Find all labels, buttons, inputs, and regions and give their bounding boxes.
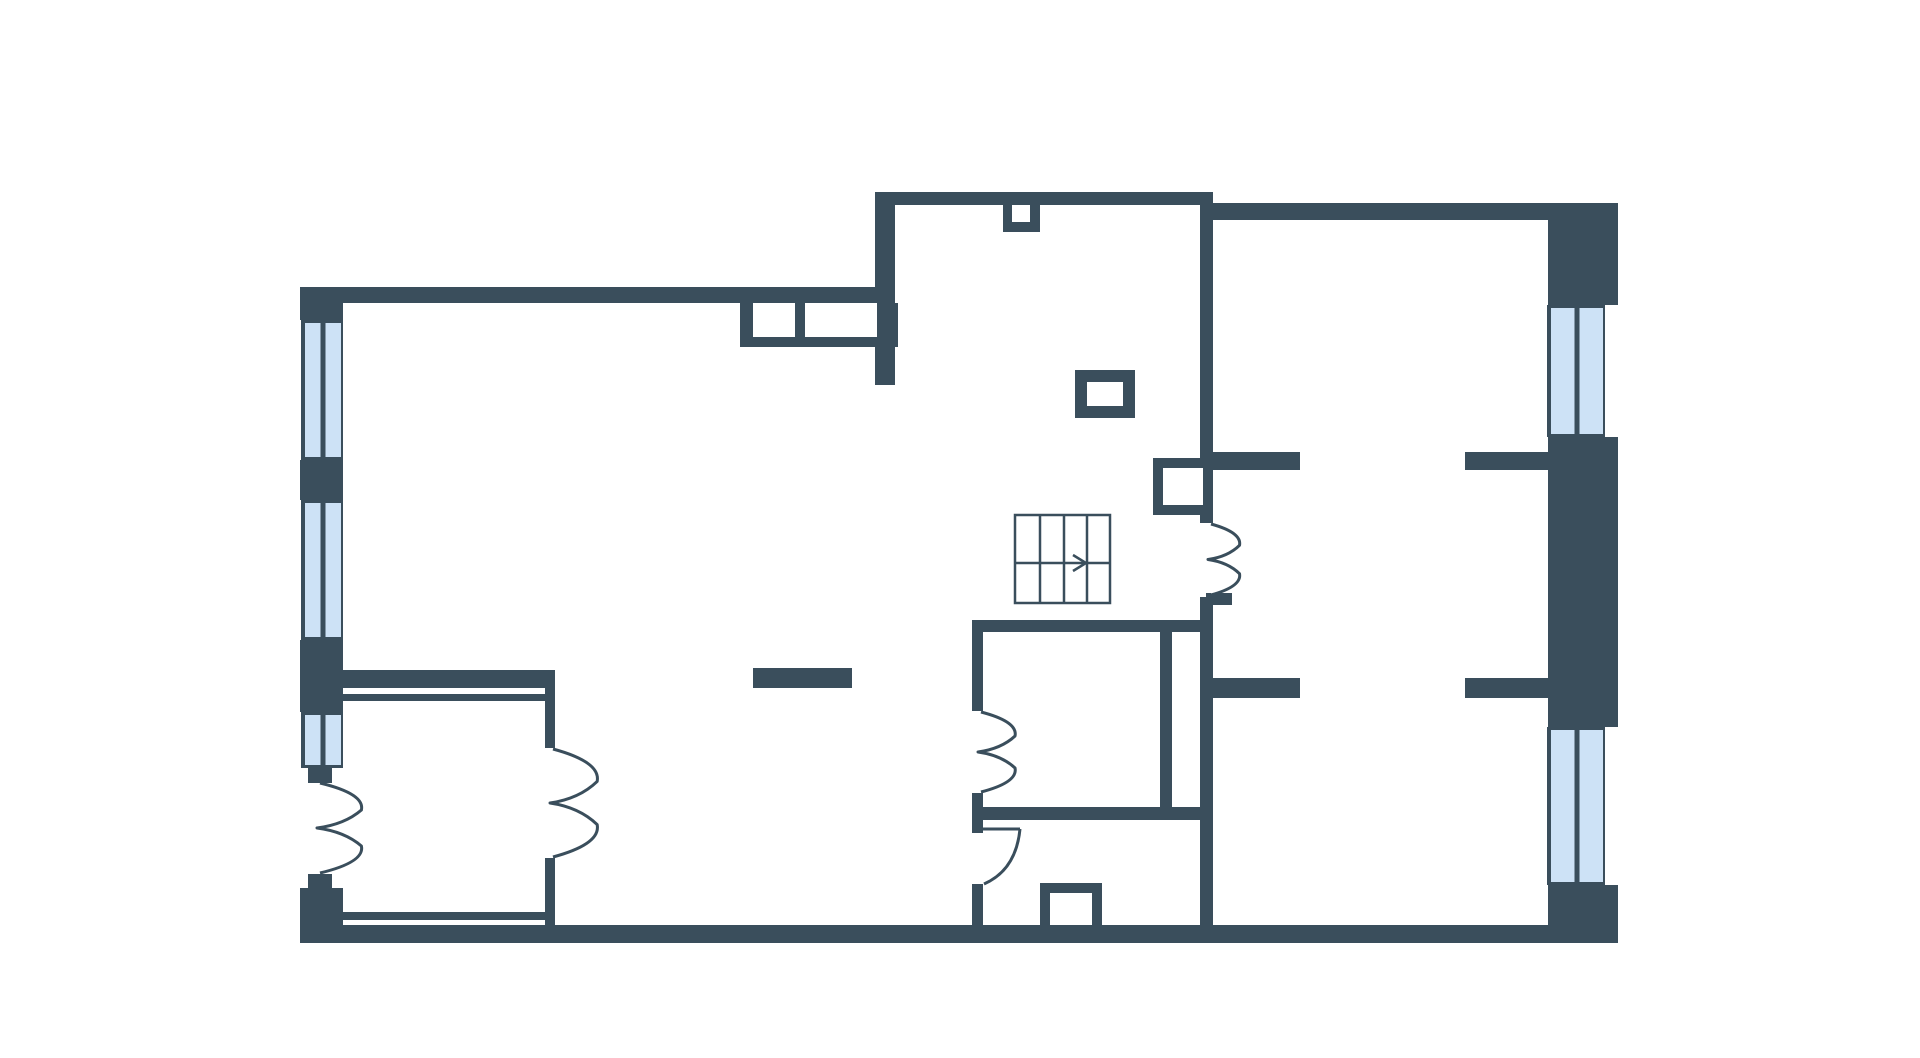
left-door-jamb-top xyxy=(308,768,332,783)
closet-top-inner-line xyxy=(343,694,555,701)
roomA-divider xyxy=(1160,632,1172,807)
window-left-1-pane-2 xyxy=(325,322,343,458)
floor-background xyxy=(0,0,1920,1058)
window-left-3-pane-2 xyxy=(325,714,343,766)
floor-plan xyxy=(0,0,1920,1058)
kitchen-bar xyxy=(753,668,852,688)
roomA-top-wall xyxy=(972,620,1202,632)
left-wall-pier-2 xyxy=(300,640,343,712)
top-niche-hole xyxy=(1012,205,1030,222)
right-wall-block-mid xyxy=(1548,437,1618,727)
top-wall-west xyxy=(300,287,877,303)
bottom-wall xyxy=(300,925,1618,943)
hall-west-wall xyxy=(875,192,895,385)
roomB-west-wall-lower xyxy=(972,884,983,925)
hall-east-wall-lower xyxy=(1200,597,1213,943)
top-wall-east xyxy=(1213,203,1548,220)
window-left-1-pane-1 xyxy=(304,322,322,458)
floor-plan-page xyxy=(0,0,1920,1058)
window-left-2-pane-1 xyxy=(304,502,322,638)
counter-hole-2 xyxy=(805,303,877,337)
partition-stub-upper-east xyxy=(1465,452,1548,470)
partition-stub-lower-east xyxy=(1465,678,1548,698)
right-wall-block-top xyxy=(1548,203,1618,305)
window-right-lower-pane-2 xyxy=(1579,729,1605,883)
bottom-box-hole xyxy=(1050,893,1092,925)
closet-east-wall-upper xyxy=(545,670,555,748)
window-left-3-pane-1 xyxy=(304,714,322,766)
left-wall-pier-1 xyxy=(300,460,343,500)
left-door-jamb-bottom xyxy=(308,874,332,888)
window-left-2-pane-2 xyxy=(325,502,343,638)
partition-stub-upper-west xyxy=(1213,452,1300,470)
window-right-lower-pane-1 xyxy=(1550,729,1576,883)
staircase-outline xyxy=(1015,515,1110,603)
partition-stub-lower-west xyxy=(1213,678,1300,698)
hall-door-sill xyxy=(1206,593,1232,605)
window-right-upper-pane-1 xyxy=(1550,307,1576,435)
roomA-bottom-wall xyxy=(972,807,1202,820)
top-wall-middle xyxy=(875,192,1213,205)
roomB-west-jamb xyxy=(972,820,983,833)
roomA-west-wall-upper xyxy=(972,620,983,711)
counter-hole-1 xyxy=(753,303,795,337)
hall-column-hole xyxy=(1087,382,1123,406)
closet-top-wall xyxy=(343,670,555,688)
closet-bottom-inner-line xyxy=(343,912,555,920)
stair-shaft-hole xyxy=(1163,468,1203,505)
window-right-upper-pane-2 xyxy=(1579,307,1605,435)
